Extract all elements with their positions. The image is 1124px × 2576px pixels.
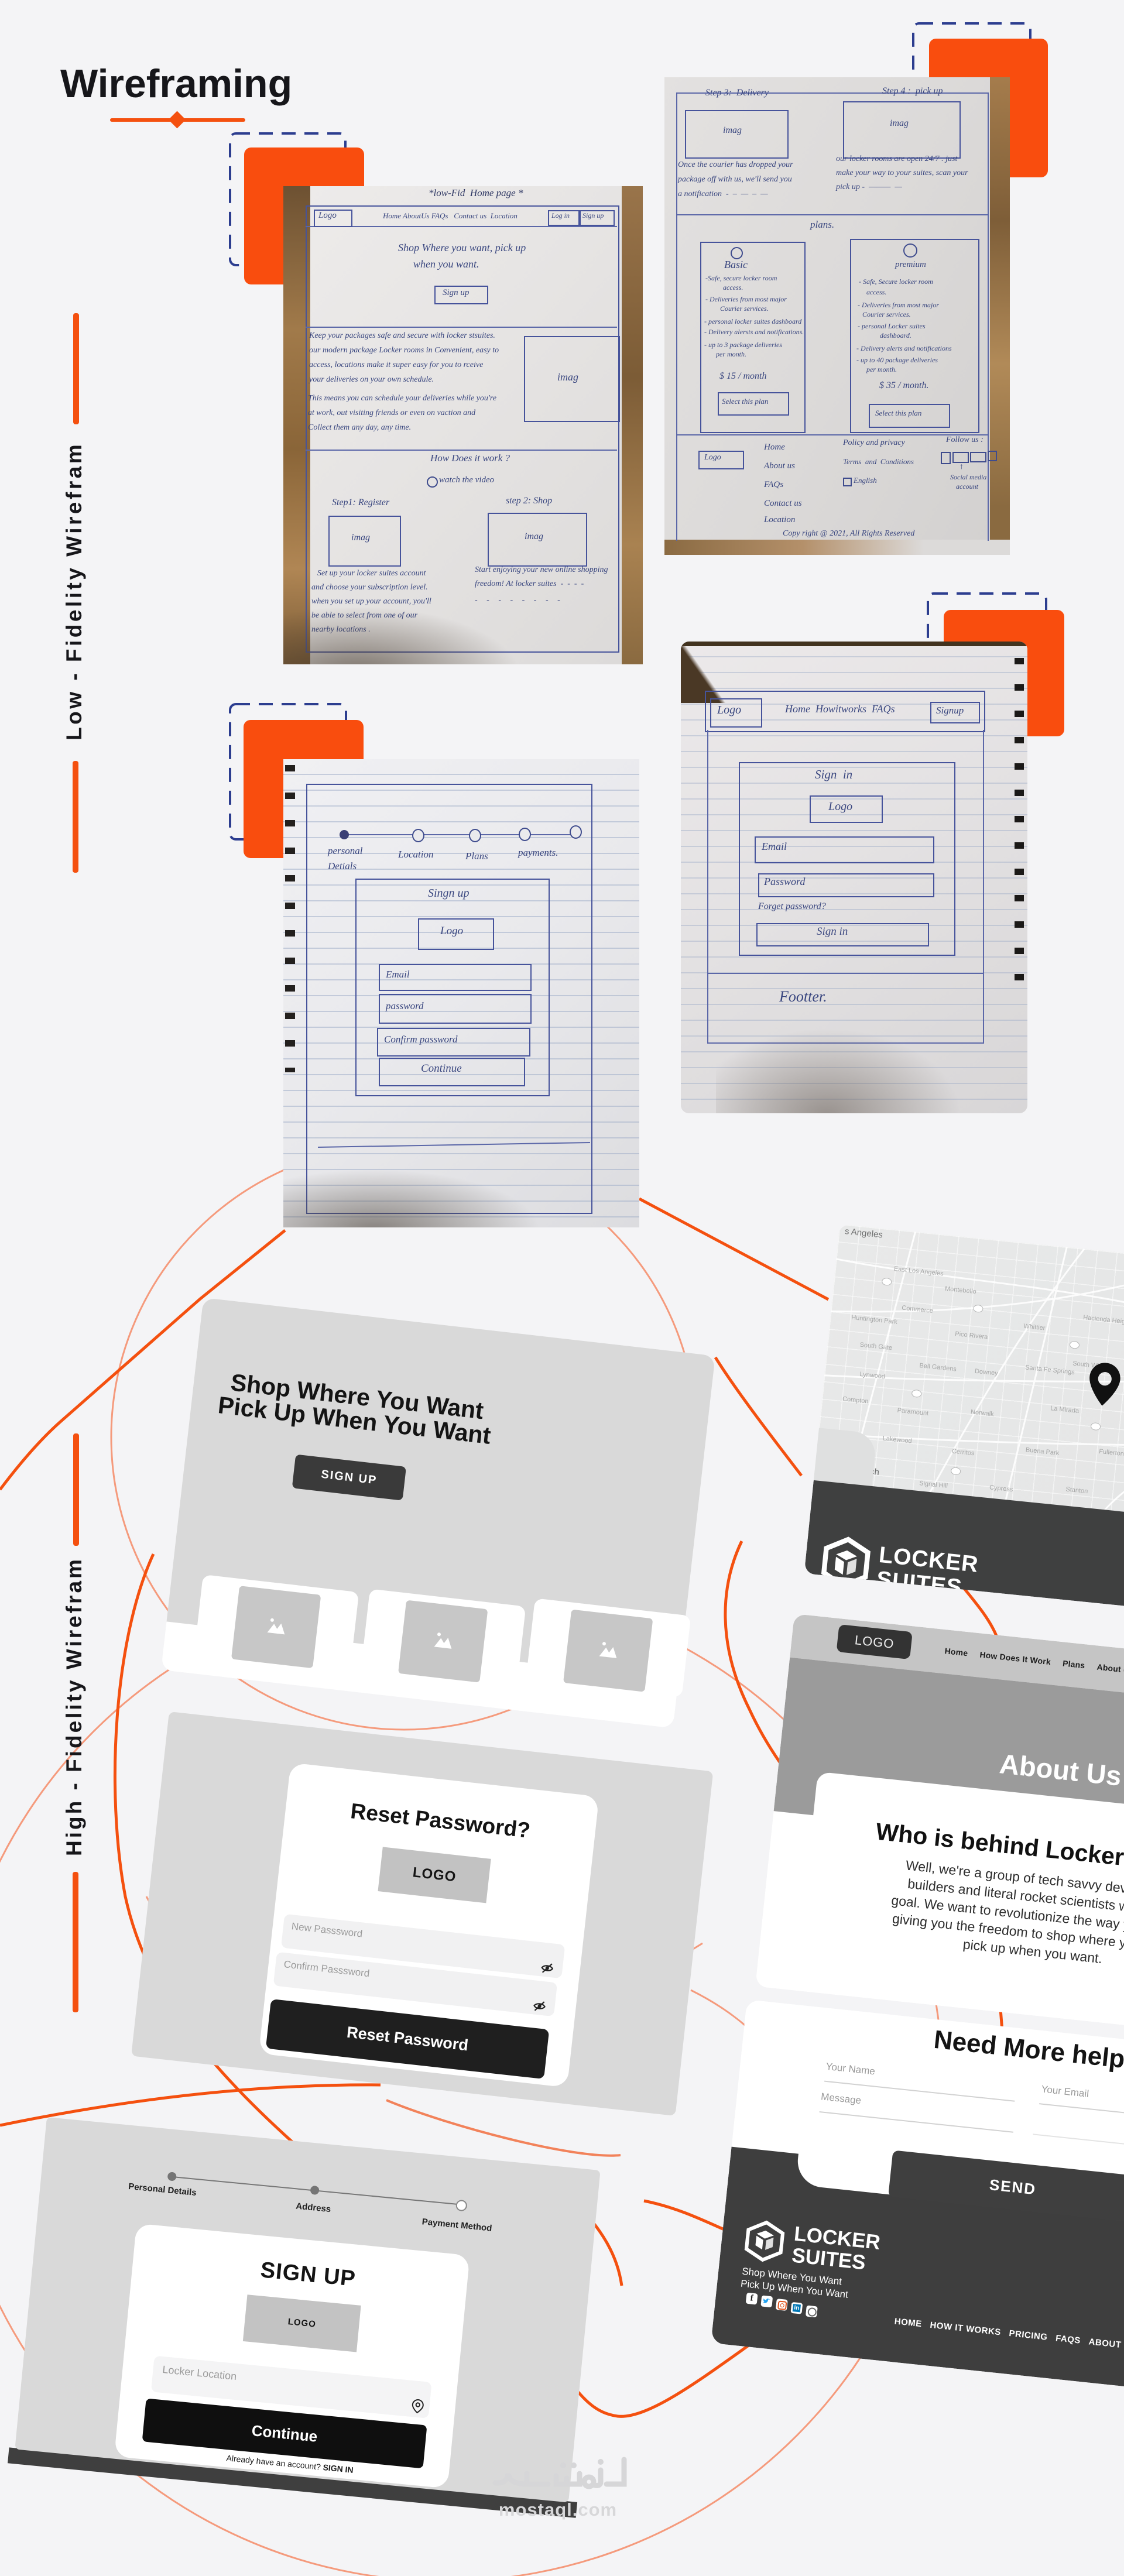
svg-text:Bell Gardens: Bell Gardens	[919, 1362, 957, 1373]
svg-text:Signal Hill: Signal Hill	[919, 1480, 948, 1490]
svg-text:Cerritos: Cerritos	[951, 1448, 975, 1457]
svg-text:Stanton: Stanton	[1065, 1486, 1088, 1495]
svg-text:Downey: Downey	[974, 1368, 998, 1377]
svg-text:Fullerton: Fullerton	[1099, 1448, 1124, 1457]
svg-text:East Los Angeles: East Los Angeles	[893, 1265, 944, 1278]
svg-text:Compton: Compton	[842, 1395, 869, 1405]
svg-text:Montebello: Montebello	[944, 1285, 976, 1295]
svg-text:Lakewood: Lakewood	[882, 1435, 912, 1445]
svg-text:La Mirada: La Mirada	[1050, 1405, 1080, 1415]
svg-text:s Angeles: s Angeles	[844, 1226, 883, 1240]
svg-text:Santa Fe Springs: Santa Fe Springs	[1025, 1364, 1075, 1376]
svg-text:Huntington Park: Huntington Park	[851, 1314, 898, 1326]
svg-text:Buena Park: Buena Park	[1025, 1446, 1060, 1457]
svg-text:Pico Rivera: Pico Rivera	[955, 1330, 989, 1341]
svg-text:Norwalk: Norwalk	[970, 1408, 994, 1418]
svg-text:Lynwood: Lynwood	[859, 1371, 886, 1380]
svg-text:South Gate: South Gate	[859, 1342, 893, 1352]
svg-text:Commerce: Commerce	[902, 1305, 934, 1315]
svg-text:Paramount: Paramount	[897, 1407, 929, 1417]
svg-text:Hacienda Heights: Hacienda Heights	[1083, 1314, 1124, 1326]
